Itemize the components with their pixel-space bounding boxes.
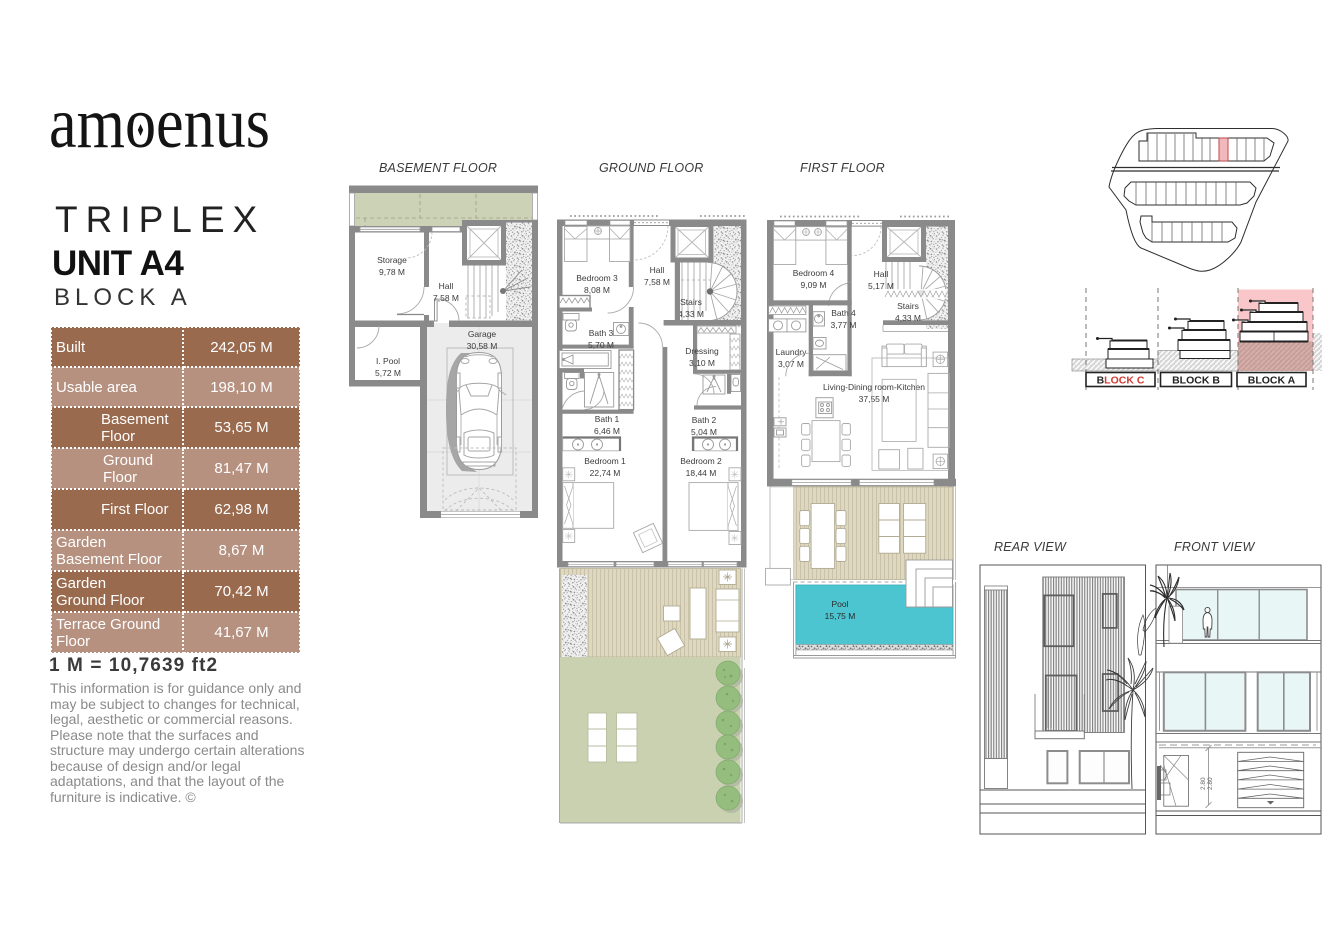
svg-text:9,78 M: 9,78 M bbox=[379, 267, 405, 277]
svg-text:18,44 M: 18,44 M bbox=[686, 468, 717, 478]
svg-text:Dressing: Dressing bbox=[685, 346, 719, 356]
svg-text:Bath 4: Bath 4 bbox=[831, 308, 856, 318]
svg-text:3,77 M: 3,77 M bbox=[831, 320, 857, 330]
svg-text:Hall: Hall bbox=[439, 281, 454, 291]
svg-text:5,17 M: 5,17 M bbox=[868, 281, 894, 291]
svg-text:3,07 M: 3,07 M bbox=[778, 359, 804, 369]
svg-text:7,58 M: 7,58 M bbox=[644, 277, 670, 287]
svg-text:Bath 3: Bath 3 bbox=[589, 328, 614, 338]
svg-text:15,75 M: 15,75 M bbox=[825, 611, 856, 621]
svg-text:4,33 M: 4,33 M bbox=[678, 309, 704, 319]
svg-text:Hall: Hall bbox=[650, 265, 665, 275]
svg-text:Stairs: Stairs bbox=[897, 301, 919, 311]
svg-text:5,70 M: 5,70 M bbox=[588, 340, 614, 350]
svg-text:8,08 M: 8,08 M bbox=[584, 285, 610, 295]
svg-text:Laundry: Laundry bbox=[776, 347, 807, 357]
svg-text:30,58 M: 30,58 M bbox=[467, 341, 498, 351]
svg-text:Bedroom 3: Bedroom 3 bbox=[576, 273, 618, 283]
svg-text:2.80: 2.80 bbox=[1200, 777, 1207, 790]
svg-text:Living-Dining room-Kitchen: Living-Dining room-Kitchen bbox=[823, 382, 925, 392]
svg-text:Stairs: Stairs bbox=[680, 297, 702, 307]
svg-text:3,10 M: 3,10 M bbox=[689, 358, 715, 368]
svg-text:7,58 M: 7,58 M bbox=[433, 293, 459, 303]
svg-text:5,72 M: 5,72 M bbox=[375, 368, 401, 378]
svg-text:Bedroom 1: Bedroom 1 bbox=[584, 456, 626, 466]
svg-text:Storage: Storage bbox=[377, 255, 407, 265]
svg-text:5,04 M: 5,04 M bbox=[691, 427, 717, 437]
svg-text:Bath 2: Bath 2 bbox=[692, 415, 717, 425]
svg-text:BLOCK A: BLOCK A bbox=[1248, 375, 1296, 387]
svg-text:Bedroom 4: Bedroom 4 bbox=[793, 268, 835, 278]
svg-text:22,74 M: 22,74 M bbox=[590, 468, 621, 478]
svg-text:BLOCK C: BLOCK C bbox=[1097, 375, 1145, 387]
svg-text:Garage: Garage bbox=[468, 329, 497, 339]
svg-text:37,55 M: 37,55 M bbox=[859, 394, 890, 404]
svg-text:Bedroom 2: Bedroom 2 bbox=[680, 456, 722, 466]
svg-text:BLOCK B: BLOCK B bbox=[1172, 375, 1220, 387]
svg-text:Bath 1: Bath 1 bbox=[595, 414, 620, 424]
svg-text:4,33 M: 4,33 M bbox=[895, 313, 921, 323]
svg-text:6,46 M: 6,46 M bbox=[594, 426, 620, 436]
svg-text:2.80: 2.80 bbox=[1207, 777, 1214, 790]
svg-text:9,09 M: 9,09 M bbox=[801, 280, 827, 290]
svg-text:Hall: Hall bbox=[874, 269, 889, 279]
svg-text:I. Pool: I. Pool bbox=[376, 356, 400, 366]
svg-text:Pool: Pool bbox=[831, 599, 848, 609]
